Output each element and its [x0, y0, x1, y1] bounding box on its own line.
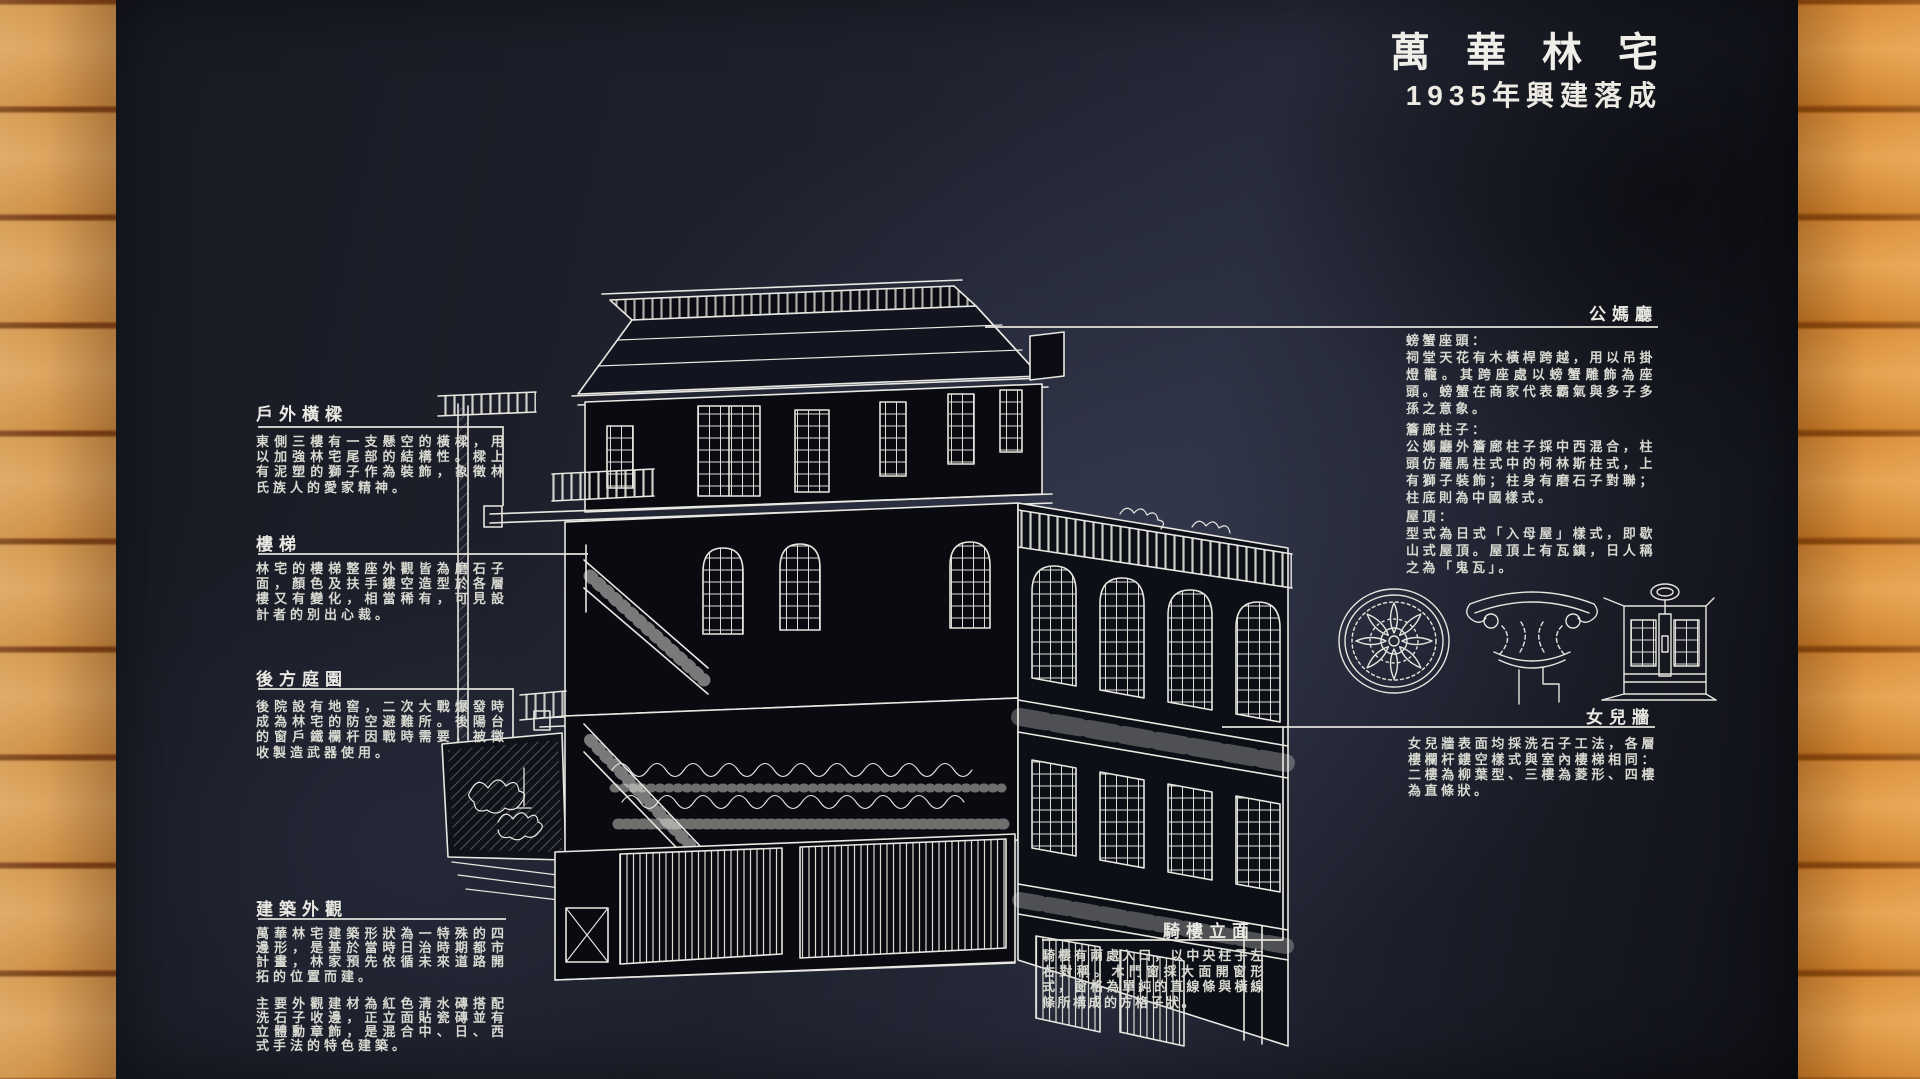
- sign-photo-scene: 萬華林宅 1935年興建落成 戶外橫樑 東側三樓有一支懸空的橫樑，用以加強林宅尾…: [0, 0, 1920, 1079]
- section-stairs-heading: 樓梯: [256, 530, 302, 555]
- item-text: 祠堂天花有木橫桿跨越，用以吊掛燈籠。其跨座處以螃蟹雕飾為座頭。螃蟹在商家代表霸氣…: [1406, 350, 1656, 416]
- item-label: 屋頂：: [1406, 508, 1656, 525]
- paragraph: 女兒牆表面均採洗石子工法，各層樓欄杆鏤空樣式與室內樓梯相同：二樓為柳葉型、三樓為…: [1408, 736, 1658, 798]
- page-title: 萬華林宅: [1390, 20, 1694, 78]
- ancestral-hall-item-roof: 屋頂： 型式為日式「入母屋」樣式，即歇山式屋頂。屋頂上有瓦鎮，日人稱之為「鬼瓦」…: [1406, 508, 1656, 576]
- column-capital-drawing: [1467, 592, 1598, 704]
- item-label: 螃蟹座頭：: [1406, 332, 1656, 349]
- paragraph: 萬華林宅建築形狀為一特殊的四邊形，是基於當時日治時期都市計畫，林家預先依循未來道…: [256, 927, 508, 984]
- section-arcade-heading: 騎樓立面: [1163, 917, 1255, 942]
- section-stairs-body: 林宅的樓梯整座外觀皆為磨石子面，顏色及扶手鏤空造型於各層樓又有變化，相當稀有，可…: [256, 561, 508, 622]
- ancestral-hall-item-crab: 螃蟹座頭： 祠堂天花有木橫桿跨越，用以吊掛燈籠。其跨座處以螃蟹雕飾為座頭。螃蟹在…: [1406, 332, 1656, 417]
- section-parapet-body: 女兒牆表面均採洗石子工法，各層樓欄杆鏤空樣式與室內樓梯相同：二樓為柳葉型、三樓為…: [1408, 736, 1658, 798]
- item-text: 公媽廳外簷廊柱子採中西混合，柱頭仿羅馬柱式中的柯林斯柱式，上有獅子裝飾；柱身有磨…: [1406, 439, 1656, 505]
- section-outdoor-beam-body: 東側三樓有一支懸空的橫樑，用以加強林宅尾部的結構性。樑上有泥塑的獅子作為裝飾，象…: [256, 434, 508, 495]
- section-exterior-heading: 建築外觀: [256, 895, 348, 920]
- paragraph: 後院設有地窖，二次大戰爆發時成為林宅的防空避難所。後陽台的窗戶鐵欄杆因戰時需要，…: [256, 699, 508, 760]
- item-label: 簷廊柱子：: [1406, 421, 1656, 438]
- item-text: 型式為日式「入母屋」樣式，即歇山式屋頂。屋頂上有瓦鎮，日人稱之為「鬼瓦」。: [1406, 526, 1656, 575]
- paragraph: 主要外觀建材為紅色清水磚搭配洗石子收邊，正立面貼瓷磚並有立體勳章飾，是混合中、日…: [256, 997, 508, 1054]
- ancestral-hall-item-columns: 簷廊柱子： 公媽廳外簷廊柱子採中西混合，柱頭仿羅馬柱式中的柯林斯柱式，上有獅子裝…: [1406, 421, 1656, 506]
- section-arcade-body: 騎樓有兩處入口，以中央柱子左右對稱。木門窗採大面開窗形式，窗格為單純的直線條與橫…: [1042, 948, 1266, 1010]
- section-parapet-heading: 女兒牆: [1586, 703, 1655, 728]
- section-outdoor-beam-heading: 戶外橫樑: [256, 400, 348, 425]
- section-ancestral-hall-heading: 公媽廳: [1589, 300, 1658, 325]
- paragraph: 騎樓有兩處入口，以中央柱子左右對稱。木門窗採大面開窗形式，窗格為單純的直線條與橫…: [1042, 948, 1266, 1010]
- section-rear-garden-heading: 後方庭園: [256, 665, 348, 690]
- ground-floor-drawing: [555, 834, 1015, 980]
- paragraph: 東側三樓有一支懸空的橫樑，用以加強林宅尾部的結構性。樑上有泥塑的獅子作為裝飾，象…: [256, 434, 508, 495]
- ceiling-medallion-drawing: [1339, 589, 1449, 693]
- third-floor-drawing: [565, 503, 1018, 716]
- section-exterior-body: 萬華林宅建築形狀為一特殊的四邊形，是基於當時日治時期都市計畫，林家預先依循未來道…: [256, 927, 508, 1054]
- window-elevation-drawing: [1602, 584, 1716, 700]
- section-rear-garden-body: 後院設有地窖，二次大戰爆發時成為林宅的防空避難所。後陽台的窗戶鐵欄杆因戰時需要，…: [256, 699, 508, 760]
- page-subtitle: 1935年興建落成: [1406, 74, 1662, 114]
- paragraph: 林宅的樓梯整座外觀皆為磨石子面，顏色及扶手鏤空造型於各層樓又有變化，相當稀有，可…: [256, 561, 508, 622]
